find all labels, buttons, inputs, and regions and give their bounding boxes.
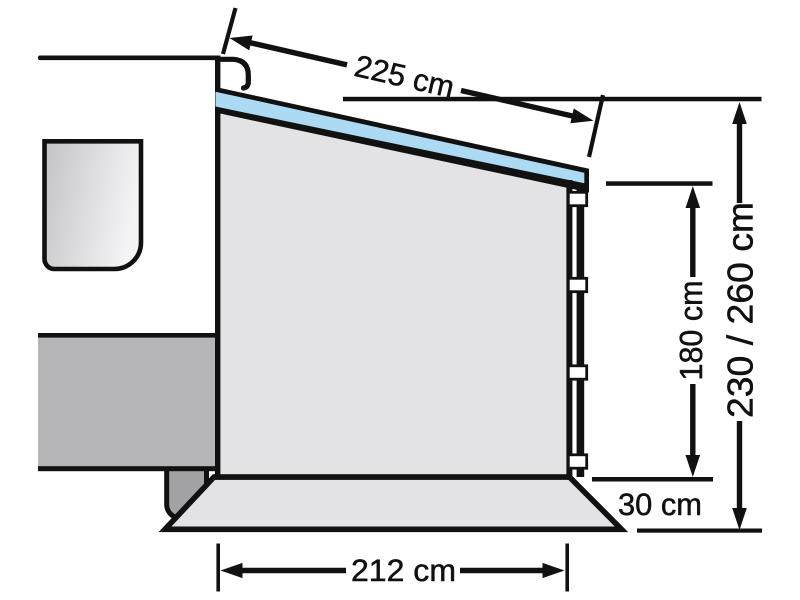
- svg-text:30 cm: 30 cm: [618, 487, 702, 522]
- svg-text:212 cm: 212 cm: [351, 553, 456, 588]
- svg-text:230 / 260 cm: 230 / 260 cm: [720, 202, 761, 418]
- svg-text:180 cm: 180 cm: [673, 281, 709, 381]
